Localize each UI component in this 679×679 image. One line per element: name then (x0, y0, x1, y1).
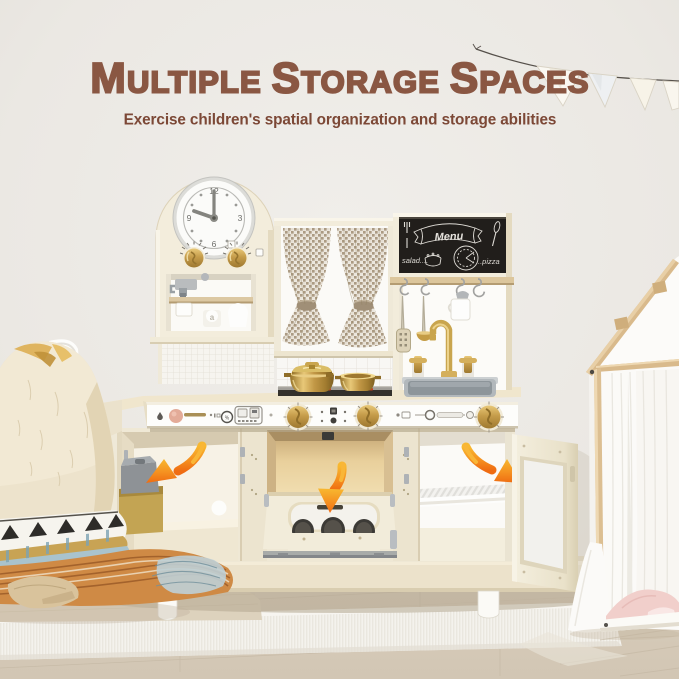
svg-text:6: 6 (212, 239, 217, 249)
svg-text:%: % (225, 416, 230, 422)
svg-text:9: 9 (187, 213, 192, 223)
svg-text:salad....: salad.... (402, 256, 428, 265)
svg-text:..pizza: ..pizza (478, 257, 500, 266)
svg-text:3: 3 (238, 213, 243, 223)
svg-text:Exercise children's spatial or: Exercise children's spatial organization… (124, 112, 557, 129)
svg-text:Menu: Menu (434, 230, 464, 244)
svg-text:a: a (210, 313, 215, 322)
